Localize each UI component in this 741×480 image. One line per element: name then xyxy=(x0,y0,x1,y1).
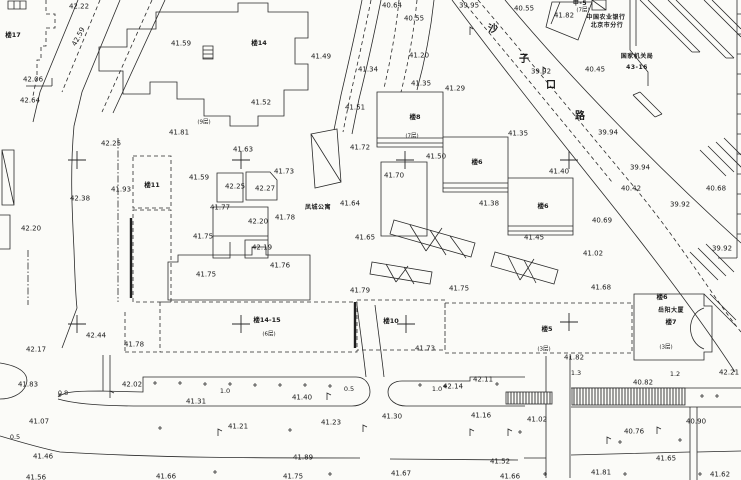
spot-elevation: 42.22 xyxy=(69,4,89,11)
road-width: 0.5 xyxy=(10,434,20,441)
spot-elevation: 41.82 xyxy=(564,355,584,362)
storey-note: (6层) xyxy=(262,332,275,338)
spot-elevation: 41.30 xyxy=(382,414,402,421)
spot-elevation: 39.94 xyxy=(630,165,650,172)
spot-elevation: 41.52 xyxy=(251,100,271,107)
spot-elevation: 41.29 xyxy=(445,86,465,93)
spot-elevation: 42.64 xyxy=(20,98,40,105)
spot-elevation: 41.64 xyxy=(340,201,360,208)
spot-elevation: 41.35 xyxy=(411,81,431,88)
spot-elevation: 39.92 xyxy=(531,69,551,76)
place-name: 甲-5 xyxy=(573,1,587,7)
spot-elevation: 42.44 xyxy=(86,333,106,340)
storey-note: (3层) xyxy=(659,345,672,351)
spot-elevation: 41.76 xyxy=(270,263,290,270)
spot-elevation: 41.66 xyxy=(500,474,520,480)
spot-elevation: 41.67 xyxy=(391,471,411,478)
building-number: 楼6 xyxy=(537,203,548,210)
spot-elevation: 41.93 xyxy=(111,187,131,194)
spot-elevation: 41.34 xyxy=(358,67,378,74)
spot-elevation: 41.59 xyxy=(171,41,191,48)
spot-elevation: 41.52 xyxy=(490,459,510,466)
spot-elevation: 41.40 xyxy=(549,169,569,176)
spot-elevation: 41.65 xyxy=(355,235,375,242)
spot-elevation: 40.42 xyxy=(621,186,641,193)
spot-elevation: 41.75 xyxy=(449,286,469,293)
spot-elevation: 41.07 xyxy=(29,419,49,426)
place-name: 凤城公寓 xyxy=(305,205,331,211)
road-width: 0.5 xyxy=(344,386,354,393)
spot-elevation: 40.68 xyxy=(706,186,726,193)
building-number: 楼5 xyxy=(541,326,552,333)
spot-elevation: 41.63 xyxy=(233,147,253,154)
spot-elevation: 40.90 xyxy=(686,419,706,426)
storey-note: (7层) xyxy=(405,134,418,140)
spot-elevation: 41.02 xyxy=(583,251,603,258)
spot-elevation: 42.06 xyxy=(23,77,43,84)
spot-elevation: 41.62 xyxy=(710,472,730,479)
spot-elevation: 42.19 xyxy=(252,245,272,252)
building-number: 楼6 xyxy=(471,159,482,166)
spot-elevation: 40.82 xyxy=(633,380,653,387)
road-width: 1.0 xyxy=(220,388,230,395)
spot-elevation: 40.64 xyxy=(382,3,402,10)
spot-elevation: 41.45 xyxy=(524,235,544,242)
spot-elevation: 41.23 xyxy=(321,420,341,427)
road-name-char: 路 xyxy=(575,112,585,122)
spot-elevation: 42.59 xyxy=(71,27,87,48)
spot-elevation: 41.81 xyxy=(591,470,611,477)
spot-elevation: 40.69 xyxy=(592,218,612,225)
spot-elevation: 41.73 xyxy=(415,346,435,353)
place-name: 43-16 xyxy=(626,65,648,71)
road-width: 1.2 xyxy=(670,371,680,378)
map-labels: 42.2242.5941.5942.0642.6440.6440.5541.49… xyxy=(0,0,741,480)
road-name-char: 沙 xyxy=(488,25,498,35)
spot-elevation: 41.49 xyxy=(311,54,331,61)
spot-elevation: 41.75 xyxy=(196,272,216,279)
spot-elevation: 40.55 xyxy=(514,6,534,13)
spot-elevation: 41.56 xyxy=(26,475,46,480)
road-width: 1.0 xyxy=(432,386,442,393)
road-name-char: 子 xyxy=(519,55,529,65)
spot-elevation: 39.92 xyxy=(712,246,732,253)
spot-elevation: 41.66 xyxy=(156,474,176,480)
spot-elevation: 42.38 xyxy=(70,196,90,203)
spot-elevation: 41.31 xyxy=(186,399,206,406)
storey-note: (3层) xyxy=(537,347,550,353)
spot-elevation: 39.95 xyxy=(459,3,479,10)
spot-elevation: 39.92 xyxy=(670,202,690,209)
spot-elevation: 41.38 xyxy=(479,201,499,208)
building-number: 楼7 xyxy=(665,319,676,326)
spot-elevation: 41.51 xyxy=(345,105,365,112)
spot-elevation: 39.94 xyxy=(598,130,618,137)
spot-elevation: 41.73 xyxy=(274,169,294,176)
place-name: 中国农业银行 xyxy=(586,15,625,21)
road-name-char: 口 xyxy=(546,81,556,91)
building-number: 楼14-15 xyxy=(253,317,280,324)
building-number: 楼10 xyxy=(383,318,399,325)
spot-elevation: 41.81 xyxy=(169,130,189,137)
spot-elevation: 41.35 xyxy=(508,131,528,138)
spot-elevation: 41.75 xyxy=(193,234,213,241)
road-width: 0.8 xyxy=(58,390,68,397)
spot-elevation: 41.72 xyxy=(350,145,370,152)
place-name: 国家机关局 xyxy=(621,54,654,60)
place-name: 北京市分行 xyxy=(591,23,624,29)
spot-elevation: 42.20 xyxy=(248,219,268,226)
spot-elevation: 41.59 xyxy=(189,175,209,182)
spot-elevation: 41.77 xyxy=(210,205,230,212)
spot-elevation: 42.21 xyxy=(719,370,739,377)
spot-elevation: 40.45 xyxy=(585,67,605,74)
spot-elevation: 40.76 xyxy=(624,429,644,436)
spot-elevation: 42.02 xyxy=(122,382,142,389)
spot-elevation: 41.89 xyxy=(293,455,313,462)
spot-elevation: 41.65 xyxy=(656,456,676,463)
spot-elevation: 42.27 xyxy=(255,186,275,193)
building-number: 楼11 xyxy=(144,182,160,189)
spot-elevation: 40.55 xyxy=(404,16,424,23)
spot-elevation: 41.46 xyxy=(33,454,53,461)
spot-elevation: 42.25 xyxy=(225,184,245,191)
road-width: 1.3 xyxy=(571,370,581,377)
spot-elevation: 41.20 xyxy=(409,53,429,60)
spot-elevation: 42.17 xyxy=(26,347,46,354)
survey-map: 42.2242.5941.5942.0642.6440.6440.5541.49… xyxy=(0,0,741,480)
spot-elevation: 41.40 xyxy=(292,395,312,402)
building-number: 楼8 xyxy=(409,114,420,121)
spot-elevation: 41.83 xyxy=(18,382,38,389)
spot-elevation: 42.14 xyxy=(443,384,463,391)
spot-elevation: 41.21 xyxy=(228,424,248,431)
building-number: 楼6 xyxy=(656,294,667,301)
spot-elevation: 42.25 xyxy=(101,141,121,148)
spot-elevation: 41.50 xyxy=(426,154,446,161)
storey-note: (9层) xyxy=(197,120,210,126)
spot-elevation: 41.78 xyxy=(275,215,295,222)
spot-elevation: 41.75 xyxy=(283,474,303,480)
spot-elevation: 41.70 xyxy=(384,173,404,180)
building-number: 楼17 xyxy=(5,32,21,39)
spot-elevation: 41.78 xyxy=(124,342,144,349)
place-name: 岳阳大厦 xyxy=(658,308,684,314)
spot-elevation: 41.68 xyxy=(591,285,611,292)
building-number: 楼14 xyxy=(251,40,267,47)
spot-elevation: 41.82 xyxy=(554,13,574,20)
spot-elevation: 41.16 xyxy=(471,413,491,420)
spot-elevation: 42.11 xyxy=(473,377,493,384)
storey-note: (7层) xyxy=(576,8,589,14)
spot-elevation: 42.20 xyxy=(21,226,41,233)
spot-elevation: 41.79 xyxy=(350,288,370,295)
spot-elevation: 41.02 xyxy=(527,417,547,424)
